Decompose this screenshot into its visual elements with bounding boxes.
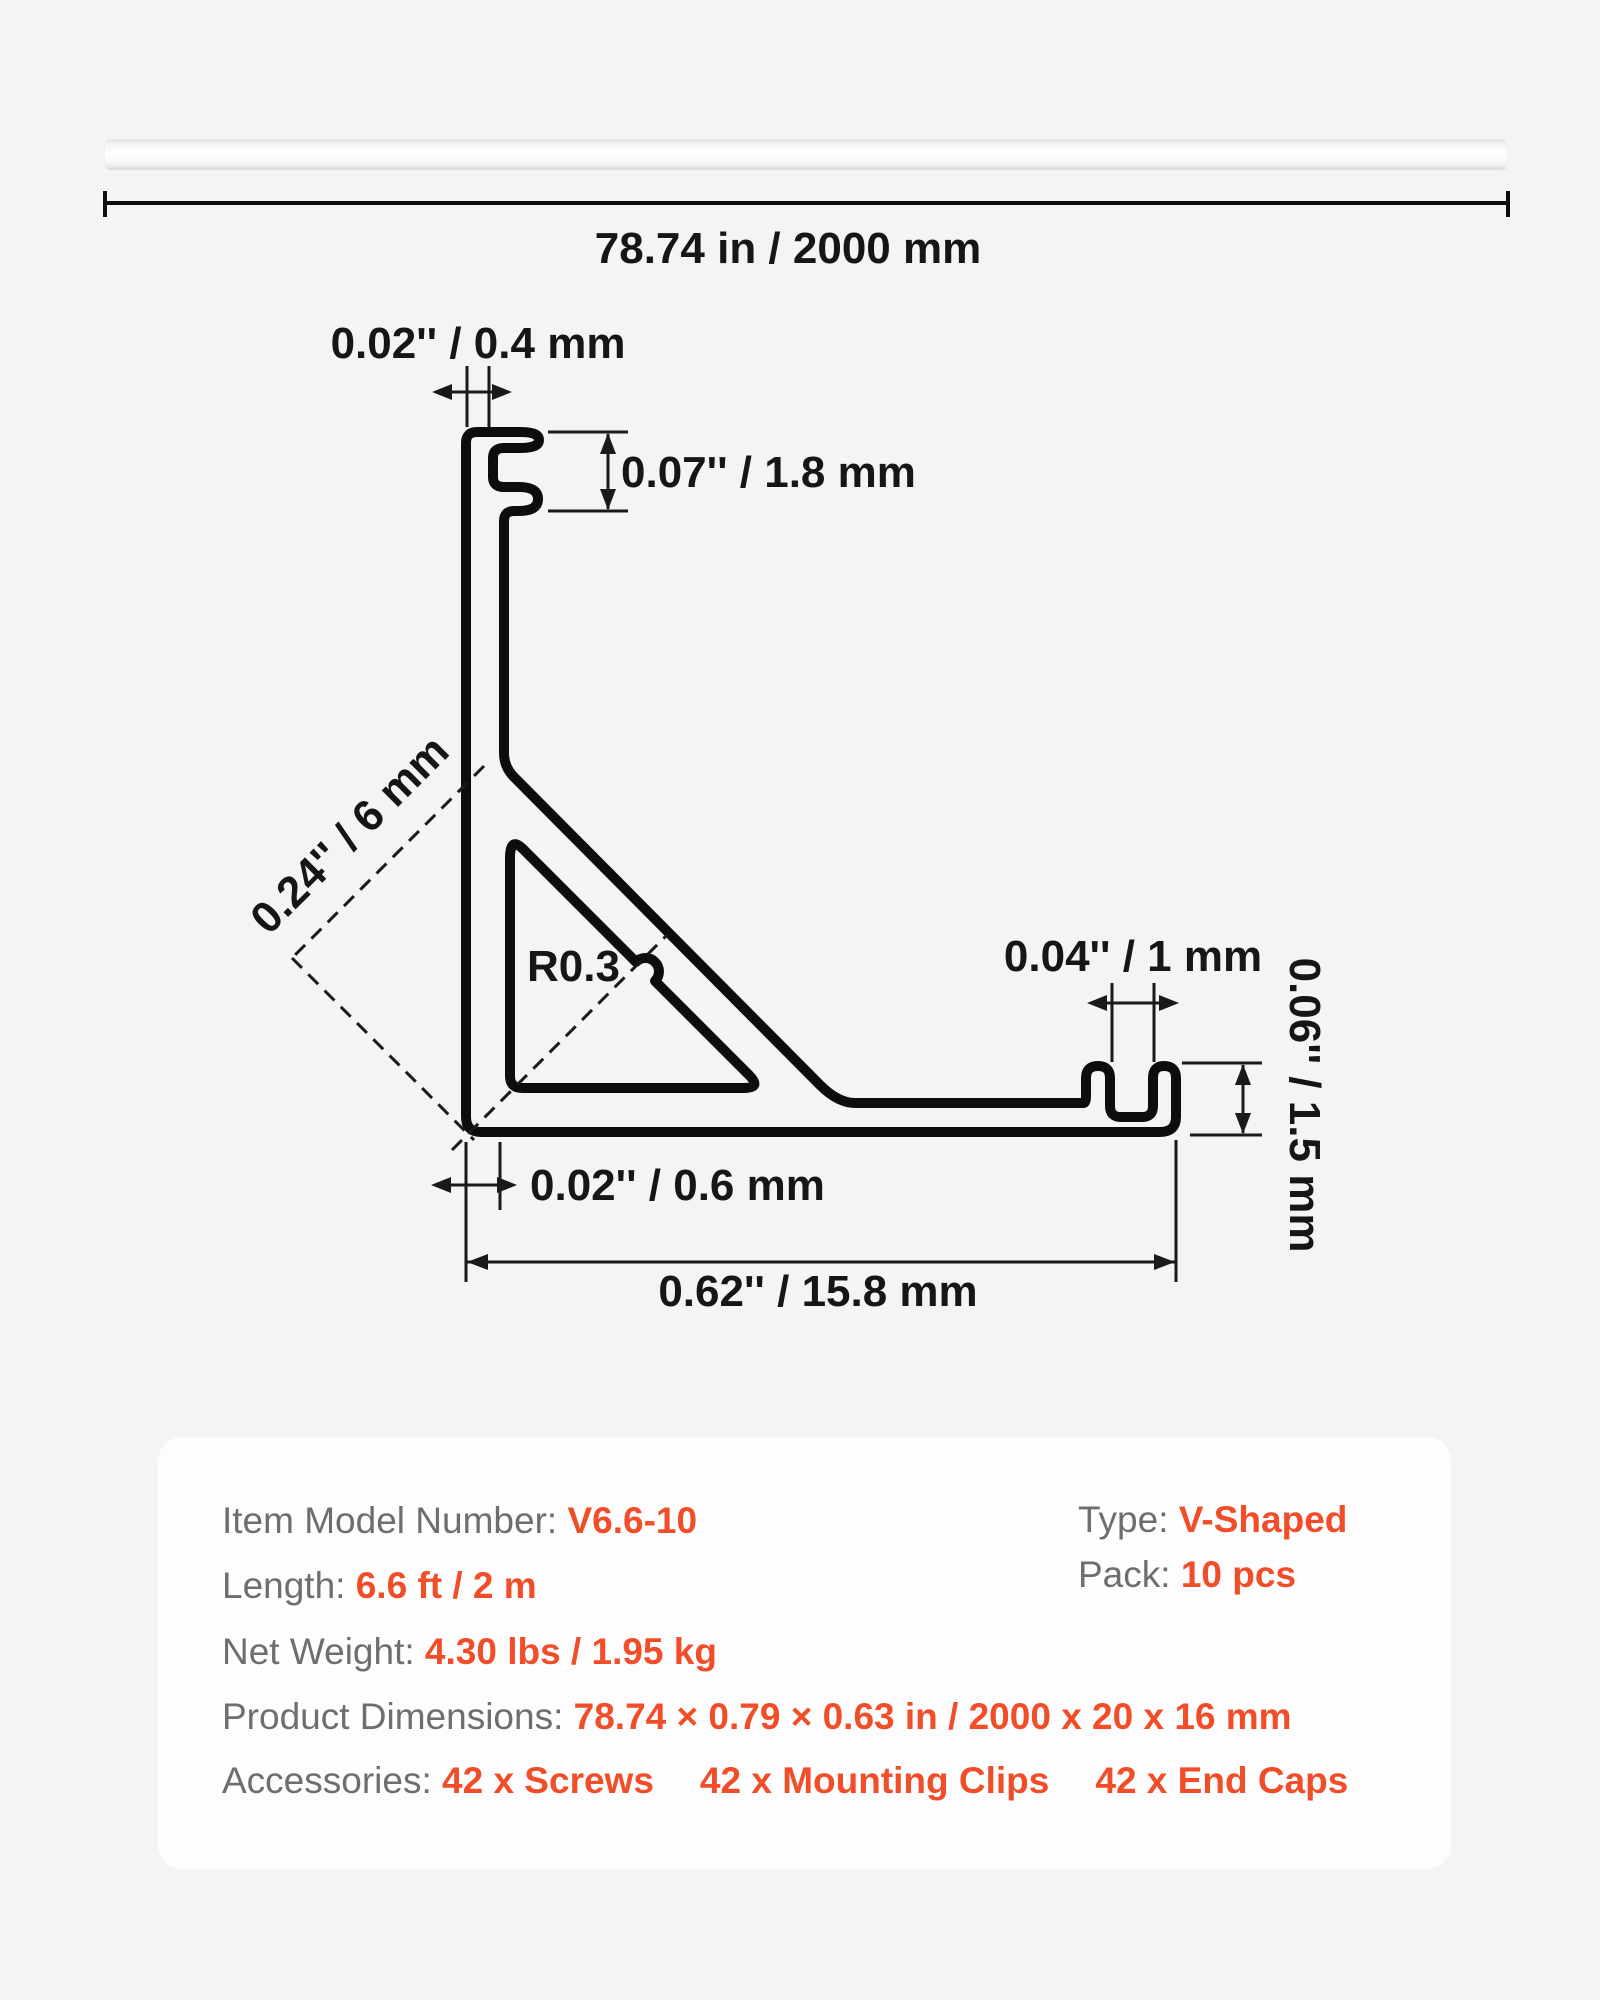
spec-row-type: Type: V-Shaped [1078, 1497, 1347, 1543]
end-lip-dimension: 0.06'' / 1.5 mm [1182, 958, 1329, 1253]
spec-value: V6.6-10 [567, 1500, 697, 1541]
wall-top-dimension: 0.02'' / 0.4 mm [331, 319, 626, 427]
spec-row-accessories: Accessories: 42 x Screws42 x Mounting Cl… [222, 1758, 1348, 1804]
spec-value: 78.74 × 0.79 × 0.63 in / 2000 x 20 x 16 … [574, 1696, 1292, 1737]
spec-value-clips: 42 x Mounting Clips [700, 1760, 1049, 1801]
clip-height-dimension: 0.07'' / 1.8 mm [548, 432, 916, 511]
corner-radius-label: R0.3 [527, 942, 620, 991]
spec-value-endcaps: 42 x End Caps [1095, 1760, 1348, 1801]
end-slot-dimension: 0.04'' / 1 mm [1004, 932, 1262, 1062]
groove-diagonal-label: 0.24'' / 6 mm [241, 726, 458, 943]
spec-row-model: Item Model Number: V6.6-10 [222, 1498, 697, 1544]
base-width-label: 0.62'' / 15.8 mm [658, 1267, 977, 1316]
end-lip-label: 0.06'' / 1.5 mm [1280, 958, 1329, 1253]
product-dimension-page: { "colors": { "page_bg": "#f5f4f2", "pan… [0, 0, 1600, 2000]
spec-label: Item Model Number: [222, 1500, 567, 1541]
overall-length-label: 78.74 in / 2000 mm [595, 224, 981, 273]
spec-label: Pack: [1078, 1554, 1181, 1595]
spec-row-length: Length: 6.6 ft / 2 m [222, 1563, 537, 1609]
end-slot-label: 0.04'' / 1 mm [1004, 932, 1262, 981]
clip-height-label: 0.07'' / 1.8 mm [621, 448, 916, 497]
spec-value: 10 pcs [1181, 1554, 1296, 1595]
diagonal-extension-lower [292, 958, 474, 1140]
wall-top-label: 0.02'' / 0.4 mm [331, 319, 626, 368]
profile-cross-section-diagram: 78.74 in / 2000 mm 0.02'' / 0.4 mm 0.07'… [0, 0, 1600, 1420]
spec-label: Length: [222, 1565, 356, 1606]
profile-outline [466, 432, 1176, 1132]
spec-value: 4.30 lbs / 1.95 kg [425, 1631, 717, 1672]
spec-row-pack: Pack: 10 pcs [1078, 1552, 1296, 1598]
spec-label: Net Weight: [222, 1631, 425, 1672]
spec-value: V-Shaped [1179, 1499, 1348, 1540]
spec-label: Accessories: [222, 1760, 442, 1801]
spec-value-screws: 42 x Screws [442, 1760, 654, 1801]
spec-label: Product Dimensions: [222, 1696, 574, 1737]
spec-row-dimensions: Product Dimensions: 78.74 × 0.79 × 0.63 … [222, 1694, 1292, 1740]
spec-panel: Item Model Number: V6.6-10 Length: 6.6 f… [158, 1437, 1451, 1869]
spec-row-weight: Net Weight: 4.30 lbs / 1.95 kg [222, 1629, 717, 1675]
wall-bottom-label: 0.02'' / 0.6 mm [530, 1161, 825, 1210]
spec-label: Type: [1078, 1499, 1179, 1540]
spec-value: 6.6 ft / 2 m [356, 1565, 537, 1606]
overall-length-dimension: 78.74 in / 2000 mm [105, 191, 1508, 273]
